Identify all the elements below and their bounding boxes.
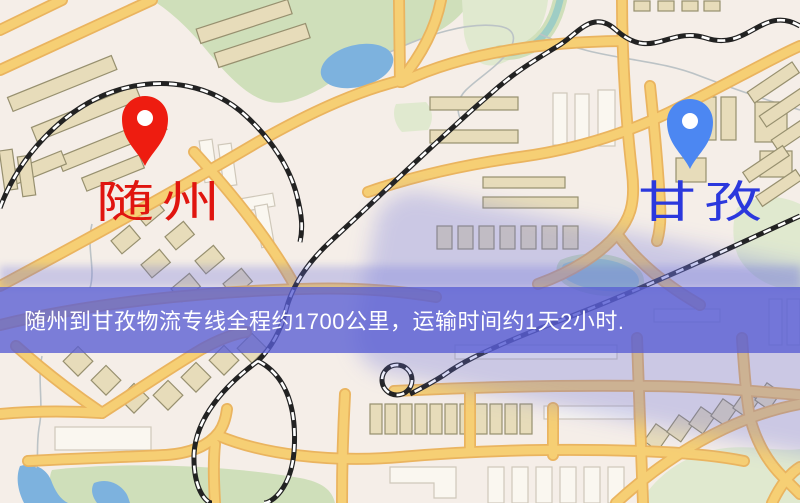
origin-pin-hole xyxy=(137,110,153,126)
banner-text: 随州到甘孜物流专线全程约1700公里，运输时间约1天2小时. xyxy=(24,304,625,336)
map-canvas: 随州到甘孜物流专线全程约1700公里，运输时间约1天2小时. 随州 甘孜 xyxy=(0,0,800,503)
info-banner: 随州到甘孜物流专线全程约1700公里，运输时间约1天2小时. xyxy=(0,287,800,353)
destination-pin-hole xyxy=(682,113,698,129)
origin-label: 随州 xyxy=(17,181,307,225)
destination-label: 甘孜 xyxy=(559,181,800,225)
